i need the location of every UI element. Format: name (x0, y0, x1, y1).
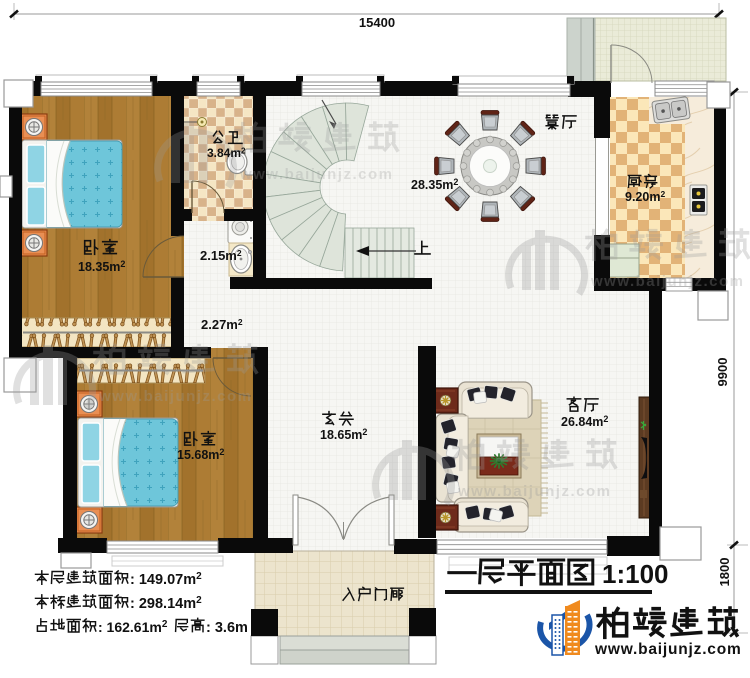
svg-text:18.35m2: 18.35m2 (78, 259, 125, 274)
svg-text:www.baijunjz.com: www.baijunjz.com (98, 388, 252, 405)
svg-text:9900: 9900 (715, 358, 730, 387)
svg-text:3.84m2: 3.84m2 (207, 146, 246, 160)
svg-text:: 149.07m2: : 149.07m2 (130, 571, 202, 588)
svg-text:18.65m2: 18.65m2 (320, 427, 367, 442)
svg-text:1800: 1800 (717, 558, 732, 587)
svg-text:15400: 15400 (359, 15, 395, 30)
svg-text:1:100: 1:100 (602, 559, 669, 589)
svg-text:2.27m2: 2.27m2 (201, 317, 243, 332)
svg-text:www.baijunjz.com: www.baijunjz.com (590, 273, 744, 290)
svg-text:: 298.14m2: : 298.14m2 (130, 595, 202, 612)
svg-text:www.baijunjz.com: www.baijunjz.com (594, 641, 742, 658)
svg-text:: 3.6m: : 3.6m (206, 620, 248, 636)
svg-text:www.baijunjz.com: www.baijunjz.com (457, 483, 611, 500)
svg-text:15.68m2: 15.68m2 (177, 447, 224, 462)
svg-text:2.15m2: 2.15m2 (200, 248, 242, 263)
svg-text:: 162.61m2: : 162.61m2 (98, 619, 168, 635)
svg-text:28.35m2: 28.35m2 (411, 177, 458, 192)
svg-text:9.20m2: 9.20m2 (625, 189, 665, 204)
svg-text:26.84m2: 26.84m2 (561, 414, 608, 429)
svg-text:www.baijunjz.com: www.baijunjz.com (239, 166, 393, 183)
